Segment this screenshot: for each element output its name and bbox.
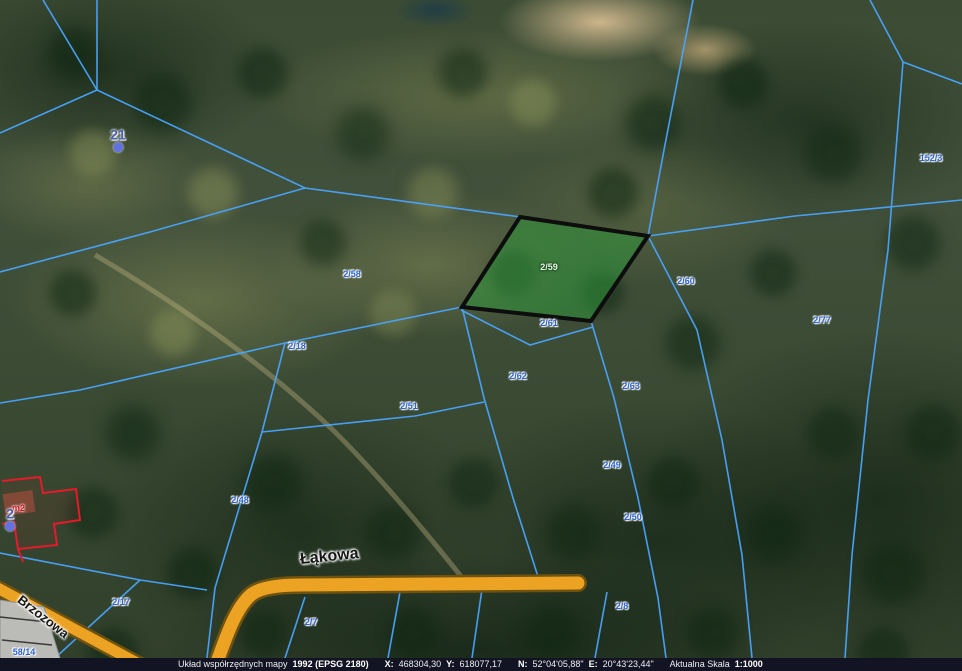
n-label: N: [518,658,528,671]
parcel-label-2/50: 2/50 [624,512,642,522]
xy-coordinates: X: 468304,30 Y: 618077,17 [385,658,502,671]
e-label: E: [589,658,598,671]
parcel-label-2/48: 2/48 [231,495,249,505]
coordinate-system-label: Układ współrzędnych mapy [178,658,288,671]
parcel-label-2/59: 2/59 [540,262,558,272]
parcel-label-58/14: 58/14 [13,647,36,657]
geoportal-map-view: Łąkowa Brzozowa m2 152/32/582/592/602/77… [0,0,962,671]
parcel-label-2/60: 2/60 [677,276,695,286]
address-dot-icon [113,142,123,152]
address-point-21: 21 [110,127,126,152]
n-value: 52°04'05,88" [533,658,584,671]
parcel-label-2/63: 2/63 [622,381,640,391]
parcel-label-2/62: 2/62 [509,371,527,381]
coordinate-system: Układ współrzędnych mapy 1992 (EPSG 2180… [178,658,369,671]
parcel-label-152/3: 152/3 [920,153,943,163]
coordinate-system-value: 1992 (EPSG 2180) [293,658,369,671]
e-value: 20°43'23,44" [603,658,654,671]
parcel-label-2/51: 2/51 [400,401,418,411]
parcel-label-2/49: 2/49 [603,460,621,470]
road-name-lakowa: Łąkowa [299,545,359,569]
scale-label: Aktualna Skala [670,658,730,671]
address-point-2: 2 [5,506,15,531]
y-label: Y: [446,658,454,671]
y-value: 618077,17 [460,658,503,671]
x-value: 468304,30 [399,658,442,671]
parcel-label-2/77: 2/77 [813,315,831,325]
address-number: 21 [110,127,126,141]
parcel-label-2/61: 2/61 [540,318,558,328]
parcel-label-2/7: 2/7 [305,617,318,627]
address-number: 2 [5,506,15,520]
geographic-coordinates: N: 52°04'05,88" E: 20°43'23,44" [518,658,654,671]
x-label: X: [385,658,394,671]
parcel-label-2/18: 2/18 [288,341,306,351]
map-canvas[interactable]: Łąkowa Brzozowa m2 152/32/582/592/602/77… [0,0,962,658]
parcel-label-2/17: 2/17 [112,597,130,607]
map-labels: Łąkowa Brzozowa m2 152/32/582/592/602/77… [0,0,962,658]
road-name-brzozowa: Brzozowa [15,592,72,641]
parcel-label-2/8: 2/8 [616,601,629,611]
parcel-label-2/58: 2/58 [343,269,361,279]
scale-value: 1:1000 [735,658,763,671]
status-bar: Układ współrzędnych mapy 1992 (EPSG 2180… [0,658,962,671]
address-dot-icon [5,521,15,531]
scale-indicator: Aktualna Skala 1:1000 [670,658,763,671]
